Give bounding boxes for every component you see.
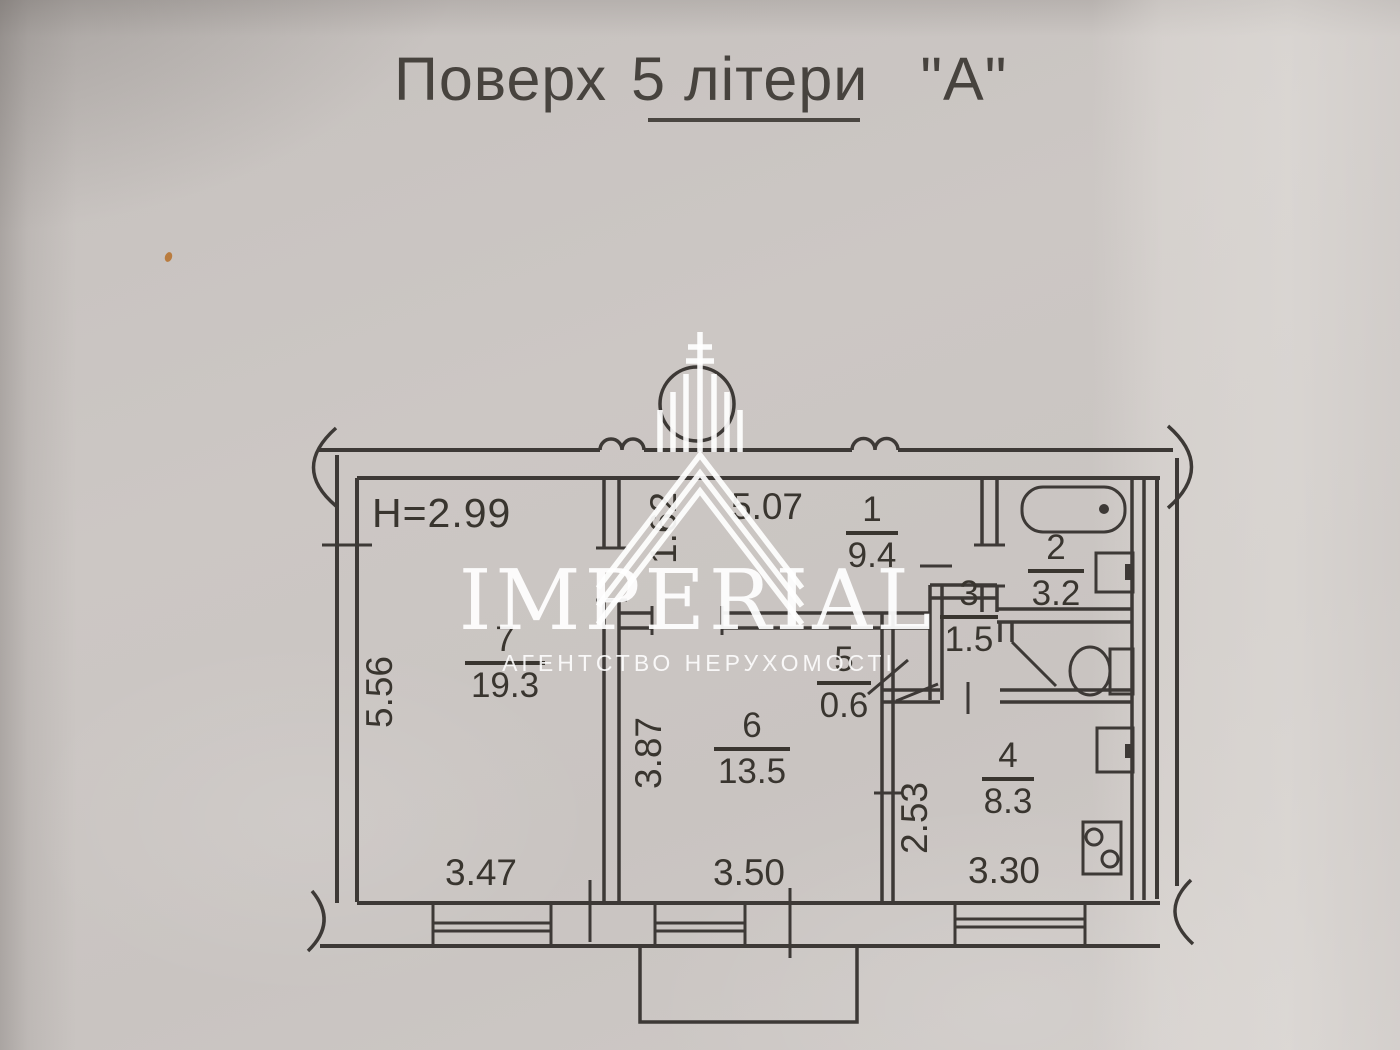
watermark-brand: IMPERIAL [459,552,936,649]
watermark-tagline: АГЕНТСТВО НЕРУХОМОСТІ [502,650,896,677]
imperial-spire-icon [0,0,1400,1050]
scanned-floorplan-page: Поверх 5 літери "А" [0,0,1400,1050]
